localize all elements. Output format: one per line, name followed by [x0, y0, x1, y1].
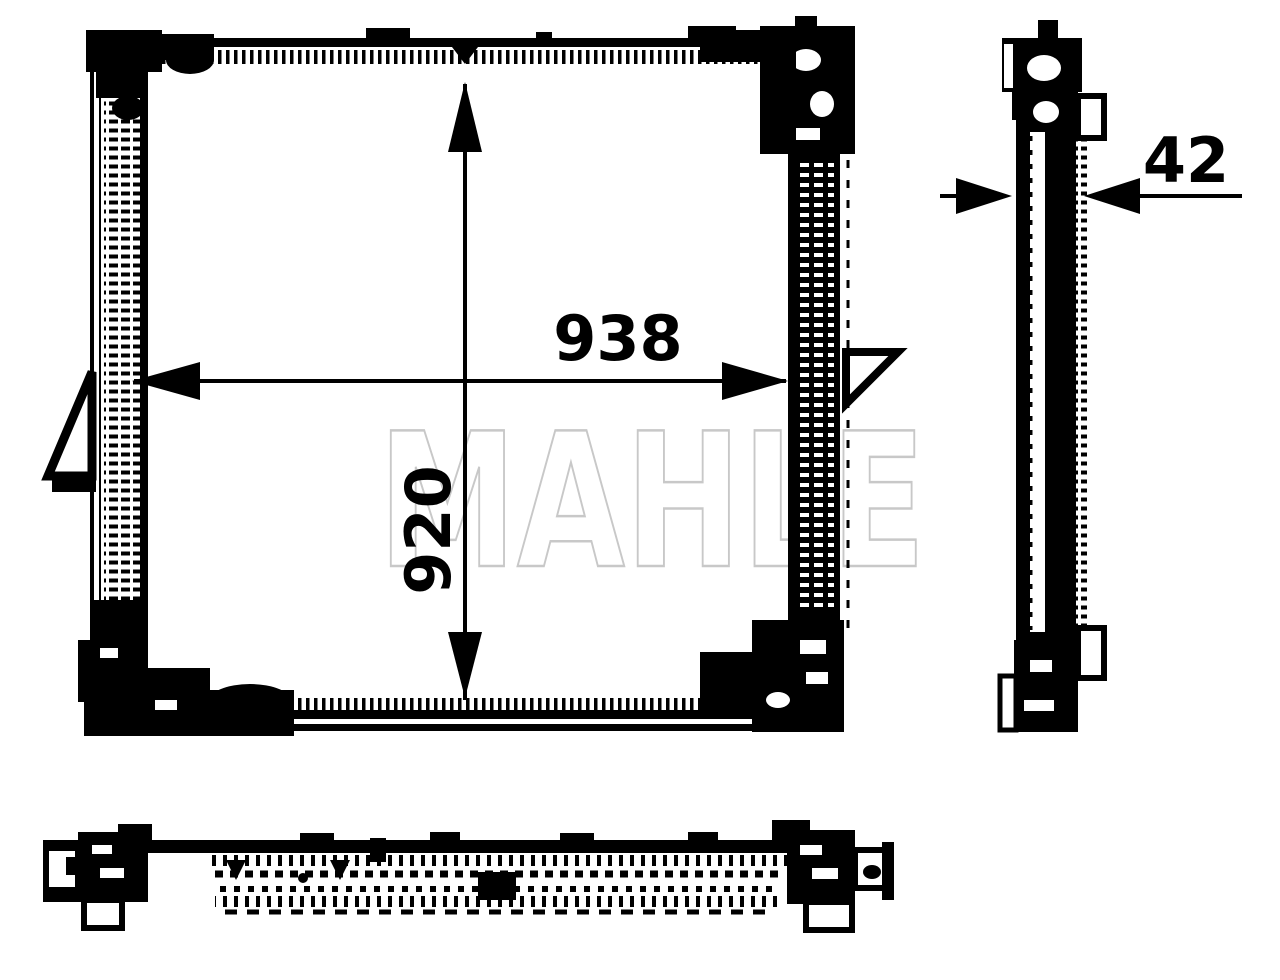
ink-detail	[330, 860, 350, 880]
top-bump	[366, 28, 410, 40]
ink-detail	[478, 872, 516, 900]
depth-dim-arrow-left	[956, 178, 1012, 214]
left-tank-wall	[140, 40, 148, 712]
bottom-right-cap	[882, 842, 894, 900]
side-fin-serration	[1076, 140, 1087, 632]
ink-detail	[66, 857, 80, 875]
white-detail	[1030, 660, 1052, 672]
bottom-serration-1	[210, 855, 788, 866]
ink-detail	[700, 652, 756, 710]
side-top-tab	[1078, 96, 1104, 138]
ink-detail	[92, 616, 132, 648]
front-view: 938 920	[48, 16, 898, 736]
side-body	[1016, 40, 1076, 688]
ink-detail	[112, 96, 144, 120]
ink-detail	[370, 838, 386, 862]
side-foot-plate	[1000, 676, 1016, 730]
side-bottom-tab	[1078, 628, 1104, 678]
bottom-view	[43, 820, 894, 930]
white-detail	[810, 91, 834, 117]
left-mount-bracket	[48, 372, 92, 476]
width-dimension-label: 938	[553, 302, 682, 375]
right-tank-hatch	[800, 158, 834, 610]
ink-detail	[863, 865, 881, 879]
side-view: 42	[940, 20, 1242, 732]
drawing-svg: MAHLE	[0, 0, 1280, 980]
white-detail	[806, 672, 828, 684]
white-detail	[1033, 101, 1059, 123]
radiator-technical-drawing: MAHLE	[0, 0, 1280, 980]
depth-dimension-label: 42	[1143, 124, 1229, 197]
white-detail	[92, 845, 112, 854]
bottom-right-foot	[806, 902, 852, 930]
white-detail	[155, 700, 177, 710]
white-detail	[812, 868, 838, 879]
white-detail	[100, 868, 124, 878]
white-detail	[1024, 700, 1054, 711]
ink-detail	[752, 620, 844, 732]
bottom-left-fittings	[78, 600, 294, 736]
ink-detail	[300, 833, 334, 841]
top-edge	[146, 26, 794, 64]
white-detail	[800, 845, 822, 855]
top-bump	[536, 32, 552, 40]
ink-detail	[298, 873, 308, 883]
bottom-right-block	[787, 830, 855, 904]
height-dim-arrow-bottom	[448, 632, 482, 698]
white-detail	[766, 692, 790, 708]
ink-detail	[430, 832, 460, 841]
white-detail	[1004, 44, 1013, 88]
side-foot-body	[1014, 640, 1078, 732]
bottom-left-block	[78, 832, 148, 902]
ink-detail	[688, 832, 718, 841]
right-tank-wall	[788, 42, 796, 714]
height-dimension-label: 920	[392, 465, 465, 594]
left-bracket-foot	[52, 478, 96, 492]
white-detail	[100, 648, 118, 658]
depth-dim-arrow-right	[1084, 178, 1140, 214]
top-right-fittings	[700, 16, 855, 154]
ink-detail	[560, 833, 594, 841]
width-dimension: 938	[132, 302, 788, 400]
bottom-top-rail	[148, 840, 790, 853]
ink-detail	[208, 684, 292, 720]
ink-detail	[96, 70, 148, 98]
white-detail	[800, 640, 826, 654]
ink-detail	[140, 668, 210, 698]
filler-stub	[795, 16, 817, 32]
ink-detail	[226, 860, 246, 880]
height-dim-arrow-top	[448, 82, 482, 152]
bottom-left-foot	[84, 900, 122, 928]
ink-detail	[118, 824, 152, 842]
white-detail	[1027, 55, 1061, 81]
